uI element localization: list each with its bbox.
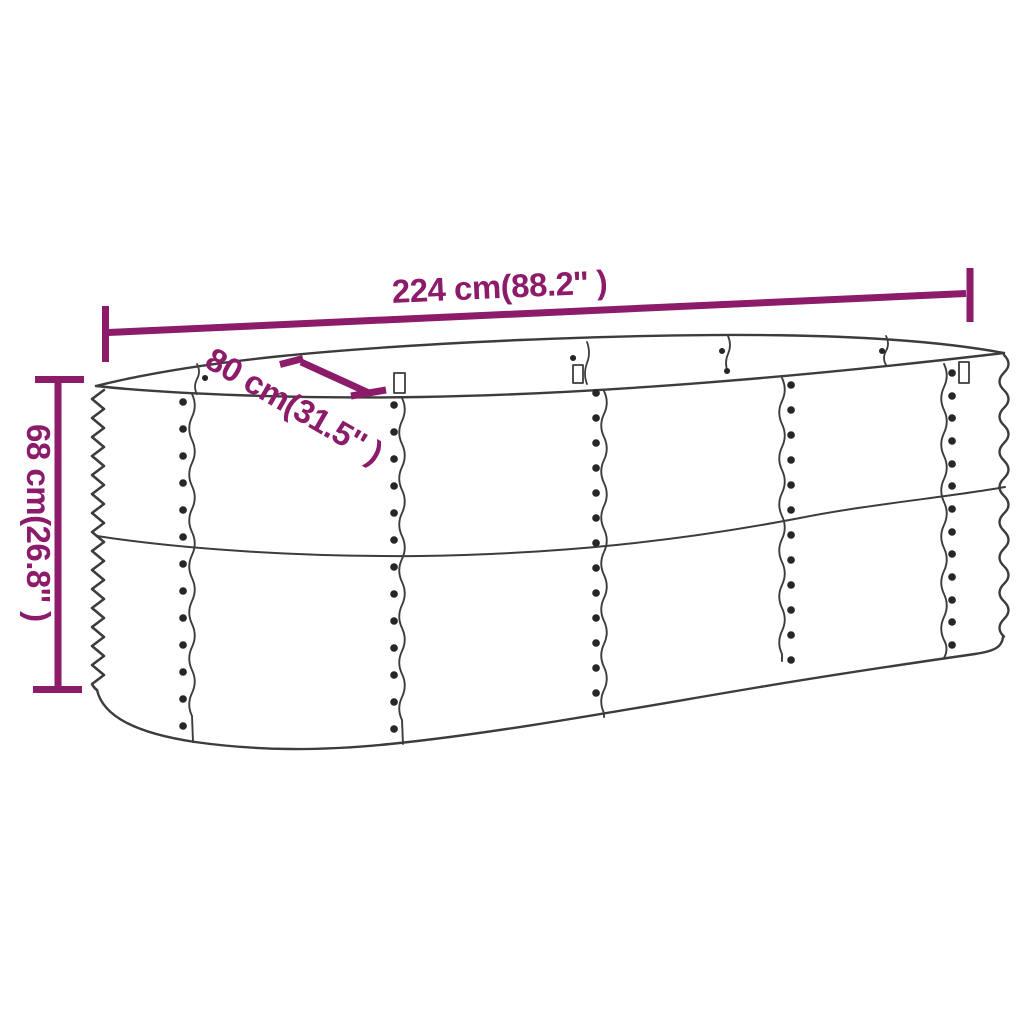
planter-drawing: [92, 335, 1009, 749]
right-corrugated-edge: [1000, 355, 1009, 637]
rim-clip-3: [959, 362, 969, 383]
height-dimension-label: 68 cm(26.8'' ): [20, 424, 57, 622]
panel-seam-2: [399, 398, 405, 744]
product-diagram-page: 224 cm(88.2'' ) 80 cm(31.5'' ) 68 cm(26.…: [0, 0, 1024, 1024]
panel-seam-5: [941, 364, 947, 658]
rim-clip-2: [573, 365, 583, 383]
panel-seam-4: [779, 378, 785, 661]
rim-clip-1: [394, 373, 405, 393]
rim-seam-2: [585, 342, 589, 384]
panel-seam-3: [601, 391, 607, 717]
rim-seam-3: [726, 336, 730, 372]
bottom-edge: [97, 637, 1003, 749]
rim-seam-1: [195, 364, 199, 394]
middle-seam: [97, 487, 1005, 556]
garden-bed-dimension-diagram: 224 cm(88.2'' ) 80 cm(31.5'' ) 68 cm(26.…: [0, 0, 1024, 1024]
left-corrugated-edge: [92, 390, 104, 690]
dimension-annotations: [33, 268, 970, 690]
panel-seam-1: [189, 394, 195, 742]
width-dimension-line: [301, 362, 369, 393]
length-dimension-label: 224 cm(88.2'' ): [391, 263, 608, 310]
width-dimension-cap-top: [280, 359, 303, 365]
